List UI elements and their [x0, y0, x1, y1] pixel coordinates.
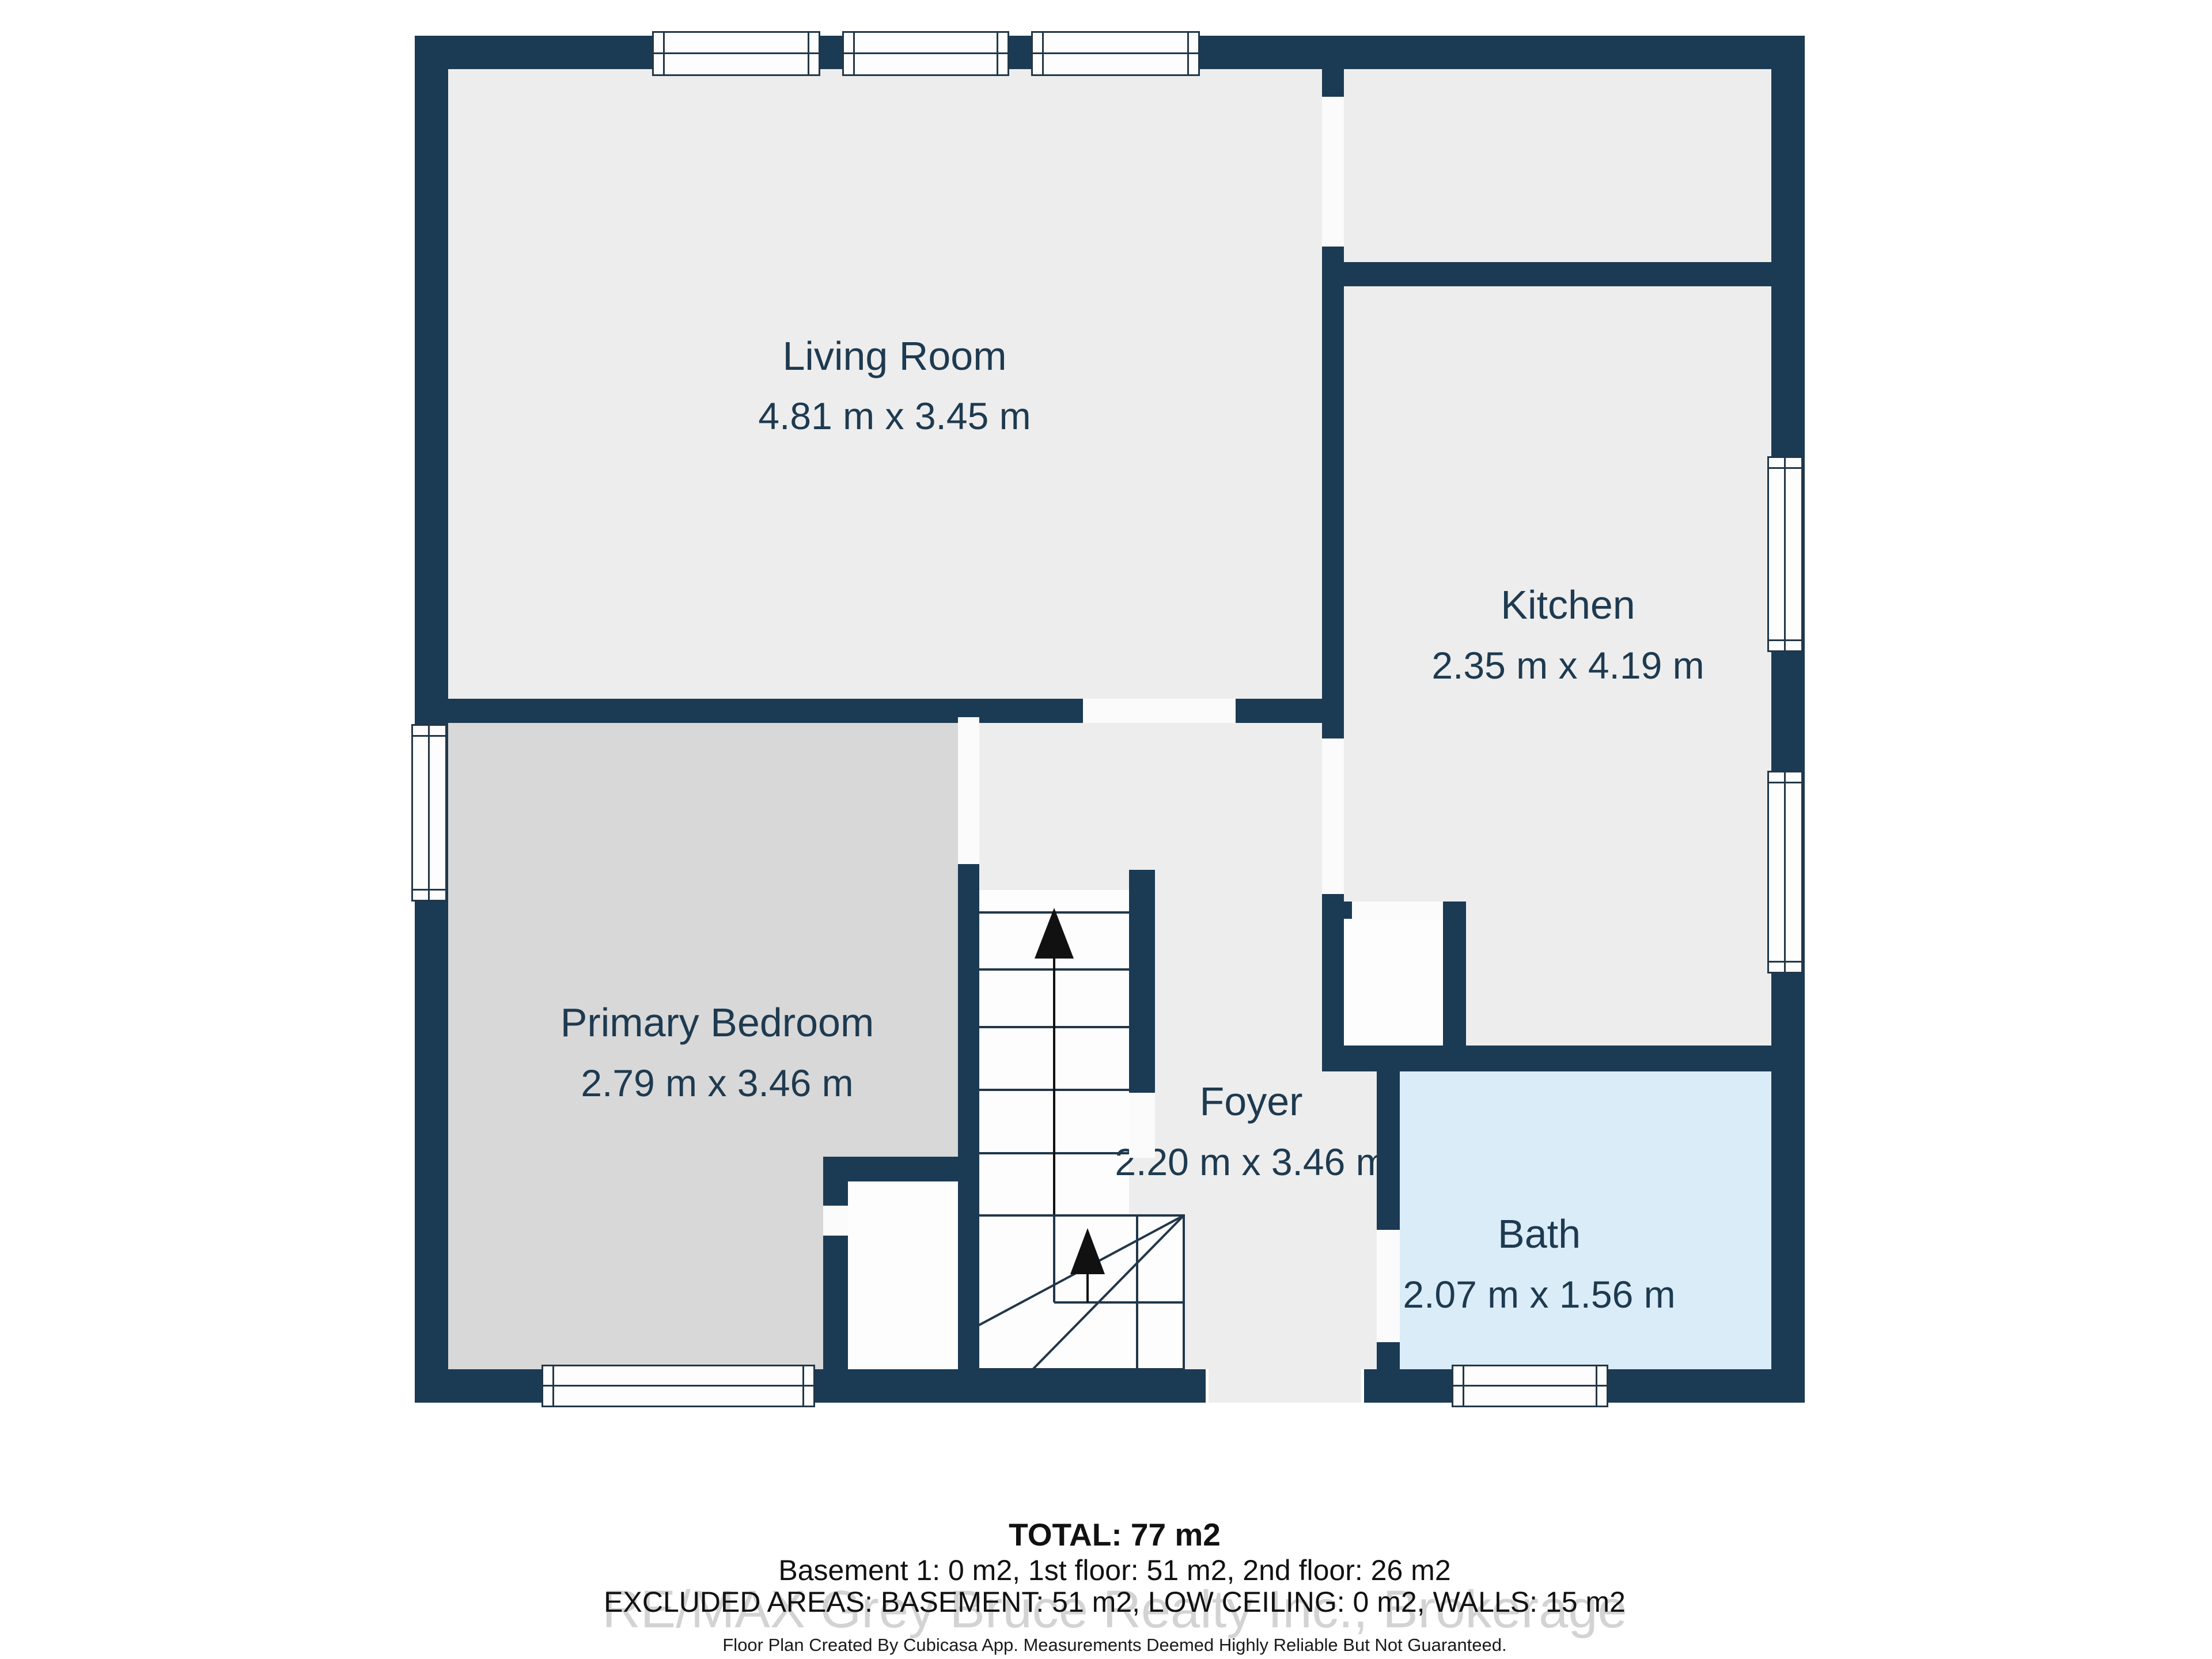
foyer-label: Foyer	[1200, 1078, 1303, 1124]
window-symbol-top-2	[842, 31, 1009, 76]
wall-bedroom-closet-top	[823, 1157, 979, 1181]
wall-living-foyer	[1236, 699, 1322, 723]
living-room-dimensions: 4.81 m x 3.45 m	[758, 394, 1031, 438]
staircase	[0, 0, 2212, 1659]
window-symbol-right-kitchen-1	[1767, 456, 1803, 652]
bath-dimensions: 2.07 m x 1.56 m	[1403, 1272, 1675, 1316]
wall-kitchen-closet-left	[1322, 894, 1344, 1046]
exterior-wall-right	[1771, 36, 1805, 1403]
bath-label: Bath	[1498, 1211, 1581, 1257]
wall-bath-left-upper	[1377, 1071, 1400, 1230]
wall-living-kitchen	[1322, 247, 1344, 738]
window-symbol-top-3	[1031, 31, 1200, 76]
window-symbol-bottom-bedroom	[541, 1365, 815, 1407]
opening-living-foyer	[1083, 699, 1236, 723]
floor-plan: Living Room 4.81 m x 3.45 m Kitchen 2.35…	[0, 0, 2212, 1659]
opening-living-rearroom	[1322, 97, 1344, 247]
primary-bedroom-dimensions: 2.79 m x 3.46 m	[581, 1061, 853, 1105]
exterior-wall-left	[415, 36, 448, 1403]
stairs-winder-run	[973, 1215, 1184, 1369]
entry-opening	[1206, 1369, 1364, 1403]
window-symbol-top-1	[652, 31, 820, 76]
wall-kitchen-closet-jamb	[1344, 902, 1352, 919]
wall-kitchen-closet-right	[1443, 902, 1466, 1046]
window-symbol-left-bedroom	[411, 724, 447, 902]
wall-living-bedroom	[448, 699, 1083, 723]
wall-bedroom-closet-left-lower	[823, 1236, 848, 1369]
disclaimer-text: Floor Plan Created By Cubicasa App. Meas…	[722, 1635, 1506, 1656]
wall-rearroom-kitchen	[1344, 262, 1771, 286]
wall-bath-top	[1322, 1046, 1771, 1071]
wall-bedroom-closet-left-upper	[823, 1181, 848, 1206]
primary-bedroom-label: Primary Bedroom	[560, 999, 874, 1046]
kitchen-dimensions: 2.35 m x 4.19 m	[1431, 643, 1704, 687]
floor-areas-text: Basement 1: 0 m2, 1st floor: 51 m2, 2nd …	[778, 1554, 1450, 1587]
door-stairwell-foyer	[1129, 1093, 1155, 1158]
wall-living-rear-stub	[1322, 69, 1344, 97]
door-kitchen-closet	[1352, 902, 1443, 920]
kitchen-label: Kitchen	[1501, 582, 1635, 628]
wall-bath-left-lower	[1377, 1342, 1400, 1369]
excluded-areas-text: EXCLUDED AREAS: BASEMENT: 51 m2, LOW CEI…	[604, 1585, 1626, 1619]
foyer-dimensions: 2.20 m x 3.46 m	[1115, 1140, 1387, 1184]
wall-bedroom-stairwell	[958, 864, 979, 1369]
window-symbol-bottom-bath	[1452, 1365, 1608, 1407]
door-bedroom-closet	[823, 1206, 848, 1236]
door-bath	[1377, 1230, 1400, 1342]
door-bedroom	[958, 717, 979, 864]
window-symbol-right-kitchen-2	[1767, 771, 1803, 974]
living-room-label: Living Room	[782, 333, 1006, 379]
wall-stairwell-right	[1129, 870, 1155, 1093]
door-foyer-kitchen	[1322, 738, 1344, 894]
total-area-text: TOTAL: 77 m2	[1009, 1516, 1221, 1553]
